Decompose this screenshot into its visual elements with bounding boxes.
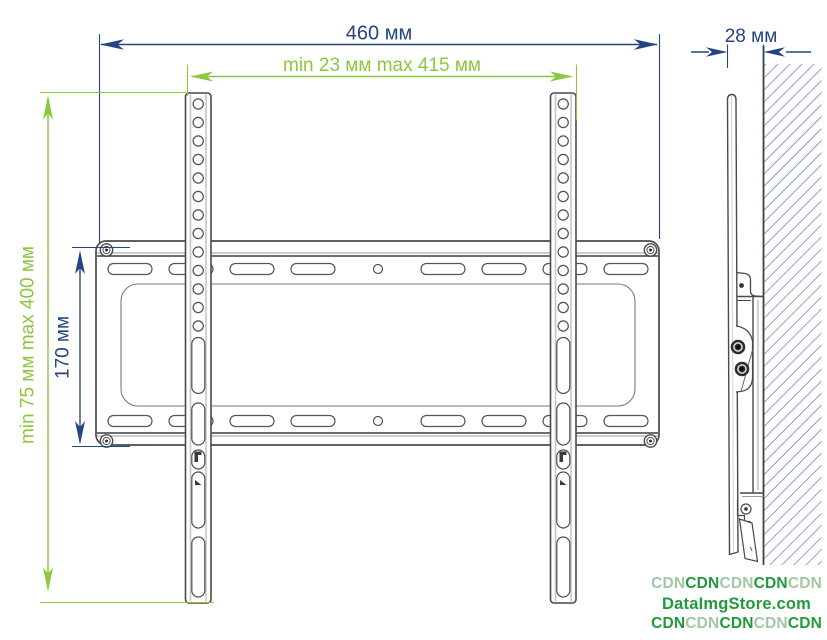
side-view (728, 46, 822, 565)
technical-drawing-page: 460 мм min 23 мм max 415 мм min 75 мм ma… (0, 0, 827, 640)
arrowhead-left (764, 47, 786, 56)
front-view (96, 93, 659, 603)
vertical-pattern-label: min 75 мм max 400 мм (18, 246, 39, 444)
side-rail-profile (728, 95, 739, 555)
side-bottom-clip (738, 500, 758, 562)
horizontal-pattern-label: min 23 мм max 415 мм (283, 55, 481, 76)
watermark-text: CDN (685, 575, 719, 592)
wall-hatching (765, 64, 822, 565)
right-vertical-rail (551, 93, 577, 603)
watermark-text: CDN (719, 615, 753, 632)
watermark-row: CDNCDNCDNCDNCDN (651, 574, 822, 594)
side-wall-plate-profile (737, 297, 764, 497)
watermark: CDNCDNCDNCDNCDN DataImgStore.com CDNCDNC… (651, 574, 822, 634)
watermark-row: DataImgStore.com (651, 594, 822, 614)
left-vertical-rail (186, 93, 212, 603)
watermark-row: CDNCDNCDNCDNCDN (651, 614, 822, 634)
corner-screw (100, 435, 112, 447)
bracket-drawing: 460 мм min 23 мм max 415 мм min 75 мм ma… (0, 0, 827, 640)
total-width-label: 460 мм (346, 23, 412, 45)
watermark-text: CDN (788, 615, 822, 632)
depth-label: 28 мм (725, 26, 778, 47)
corner-screw (644, 244, 656, 256)
watermark-text: CDN (651, 575, 685, 592)
plate-height-label: 170 мм (53, 316, 74, 379)
mounting-bolt (731, 340, 746, 355)
dimension-depth: 28 мм (691, 26, 811, 68)
mounting-bolt (735, 362, 750, 377)
watermark-text: CDN (651, 615, 685, 632)
watermark-text: CDN (788, 575, 822, 592)
watermark-text: CDN (754, 615, 788, 632)
corner-screw (644, 435, 656, 447)
arrowhead-right (706, 47, 728, 56)
dimension-horizontal-pattern: min 23 мм max 415 мм (188, 55, 577, 120)
watermark-text: CDN (685, 615, 719, 632)
corner-screw (100, 244, 112, 256)
watermark-text: CDN (754, 575, 788, 592)
watermark-site-text: DataImgStore.com (662, 595, 811, 613)
watermark-text: CDN (719, 575, 753, 592)
